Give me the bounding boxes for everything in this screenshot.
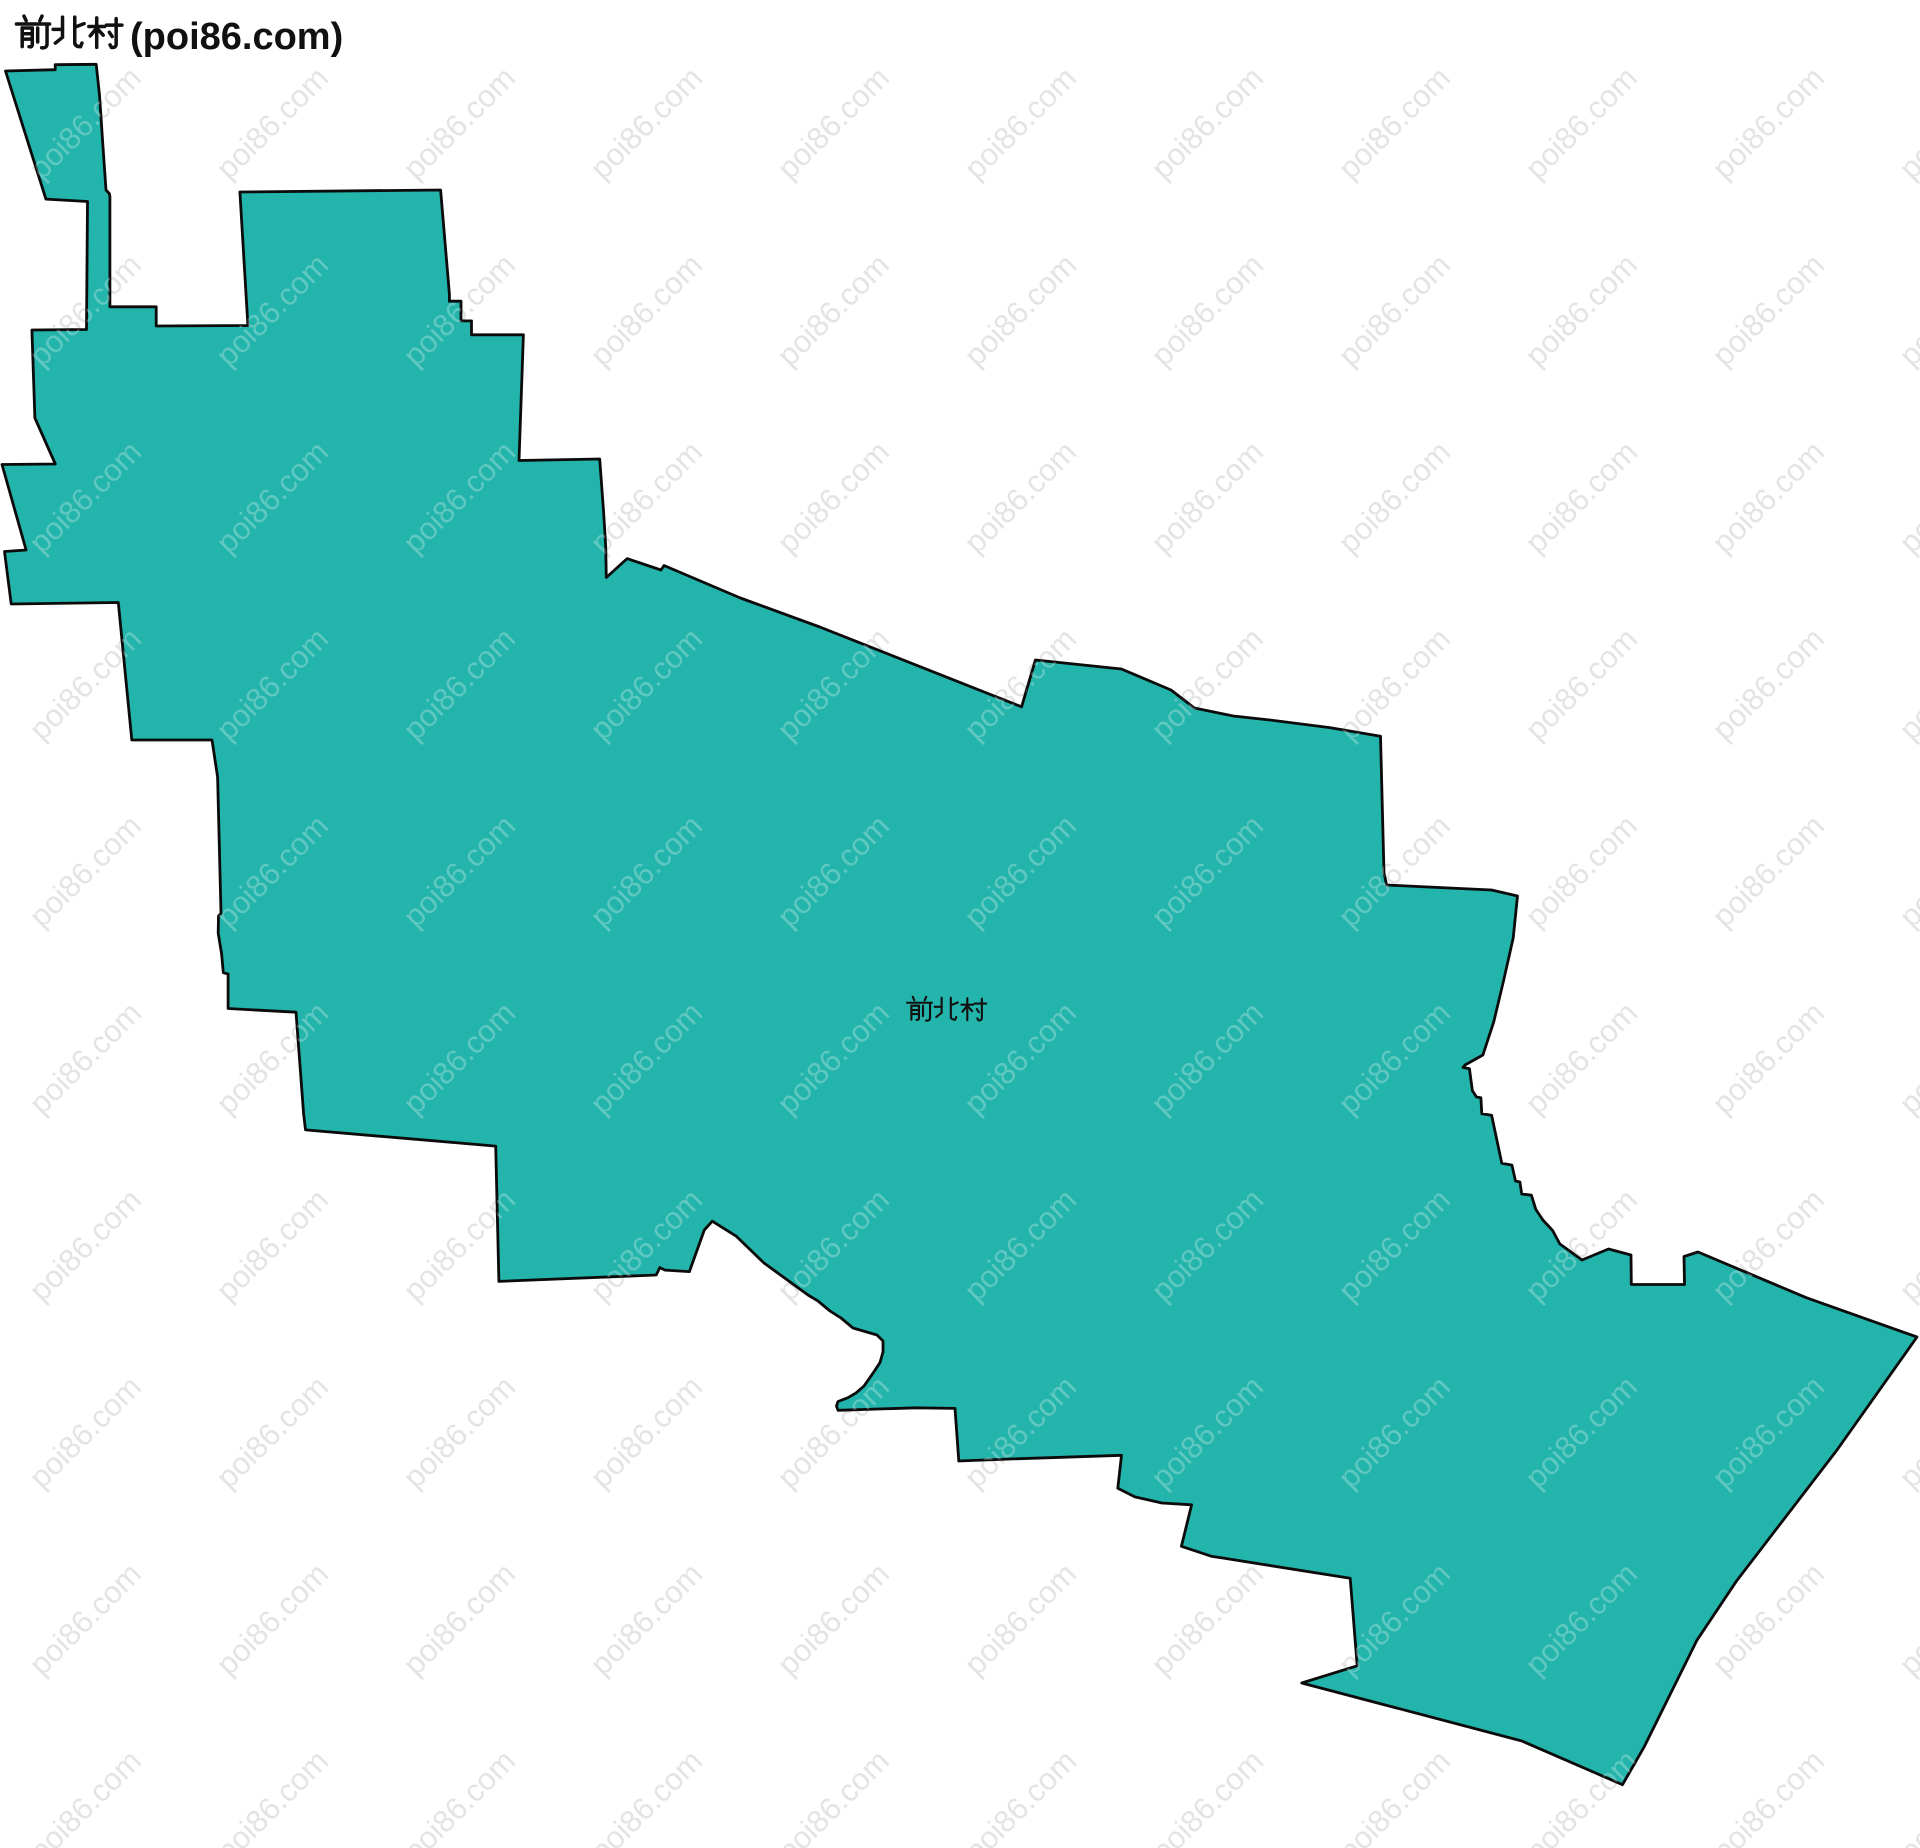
svg-text:(poi86.com): (poi86.com) <box>130 16 343 58</box>
